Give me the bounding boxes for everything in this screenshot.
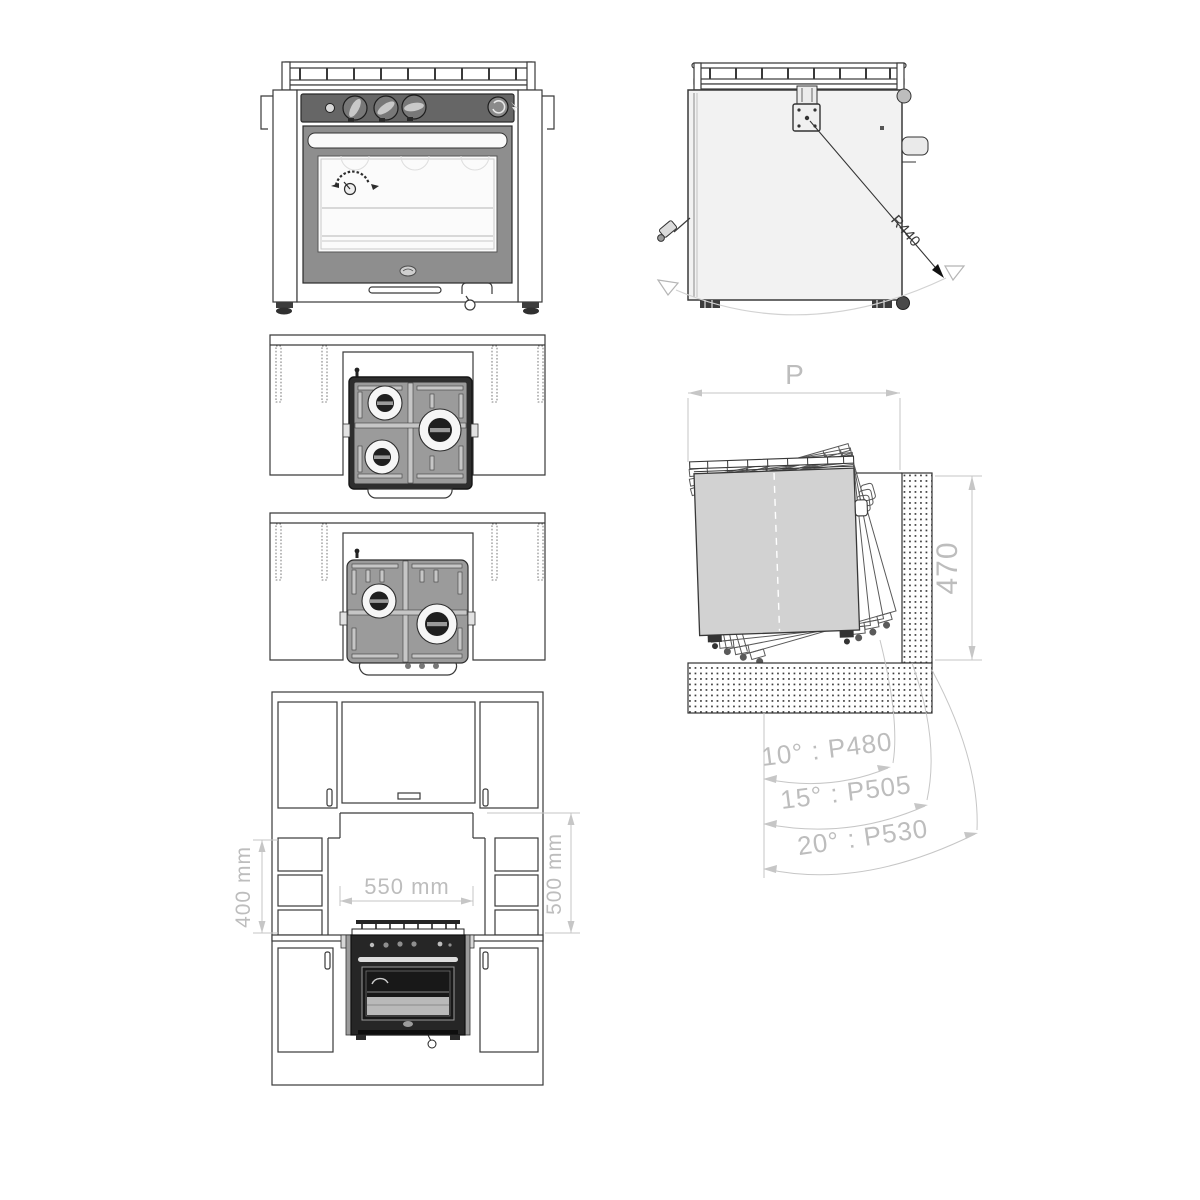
tilt-arc-20: 20° : P530 [763,813,978,875]
burner-bottom-left [365,440,399,474]
dimension-470: 470 [931,476,982,660]
recess-floor [688,663,932,713]
left-shelf-column [278,838,322,935]
oven-door [303,126,512,283]
cabinet-installation-view: 400 mm 550 mm 500 mm [232,692,580,1085]
hob-3b [343,368,478,498]
stove-latch-knob [428,1040,436,1048]
dim-500-label: 500 mm [543,833,566,915]
upper-left-door [278,702,337,808]
tilt-label-15: 15° : P505 [779,769,913,815]
dim-400-label: 400 mm [232,846,255,928]
burner-right [419,409,461,451]
lower-right-door [480,948,538,1052]
pot-rail [282,62,535,90]
door-window [318,156,497,252]
hob-2-burner-top-view [270,513,545,675]
latch-knob [465,300,475,310]
dimension-400mm: 400 mm [232,840,278,933]
control-panel [301,94,518,122]
tilt-label-20: 20° : P530 [795,813,930,861]
installed-stove [346,920,470,1048]
upper-right-door [480,702,538,808]
burner-left-2b [362,584,396,618]
burner-top-left [368,386,402,420]
dim-470-label: 470 [931,541,964,594]
oven-light-button [326,104,335,113]
hob-2b [340,549,475,675]
door-handle [308,133,507,148]
hob-front-bracket-2b [359,663,456,675]
side-handle [902,137,928,155]
timer-knob [488,97,508,117]
gimbal-mount [793,86,820,131]
hinge-knob [897,89,911,103]
front-view [261,62,554,315]
swing-position-rest [690,456,872,650]
technical-drawing-sheet: R440 [0,0,1200,1200]
dim-550-label: 550 mm [364,874,449,899]
drawing-canvas: R440 [0,0,1200,1200]
burner-knobs [343,95,426,122]
igniter-mark [355,368,360,377]
igniter-mark-2b [355,549,360,558]
upper-center-flap [342,702,475,803]
side-view: R440 [658,63,964,315]
burner-right-2b [417,604,457,644]
dimension-P: P [688,359,900,470]
brand-logo [400,266,416,276]
swing-positions [689,440,911,669]
recess-side-wall [902,473,932,663]
hob-front-bracket [368,489,452,498]
tilt-label-10: 10° : P480 [760,726,894,772]
dim-P-label: P [785,359,805,390]
gimbal-swing-diagram: P 470 [688,359,982,878]
hob-3-burner-top-view [270,335,545,498]
right-shelf-column [495,838,538,935]
gas-connector [658,218,690,241]
